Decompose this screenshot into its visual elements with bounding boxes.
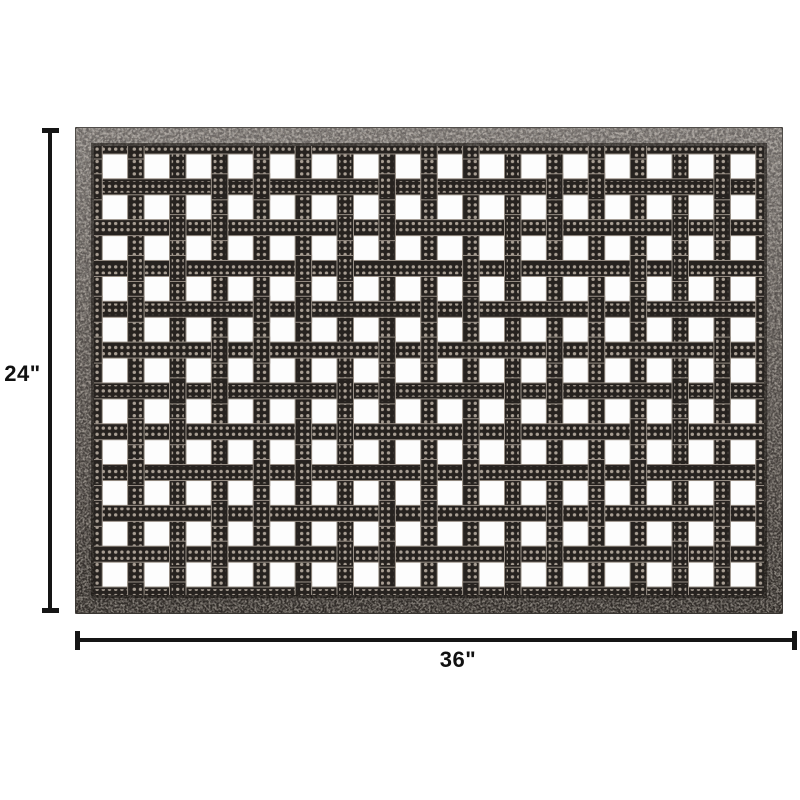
product-dimension-image: 24" 36" <box>0 0 800 800</box>
doormat-image <box>75 127 783 614</box>
height-dimension-cap-top <box>42 128 59 133</box>
height-dimension-label: 24" <box>0 361 45 387</box>
width-dimension-line <box>75 638 797 642</box>
height-dimension-line <box>48 131 52 609</box>
width-dimension-cap-right <box>792 631 797 650</box>
height-dimension-cap-bottom <box>42 608 59 613</box>
mat-weave <box>86 133 773 608</box>
width-dimension-label: 36" <box>418 647 498 673</box>
doormat-graphic <box>75 127 783 614</box>
width-dimension-cap-left <box>75 631 80 650</box>
